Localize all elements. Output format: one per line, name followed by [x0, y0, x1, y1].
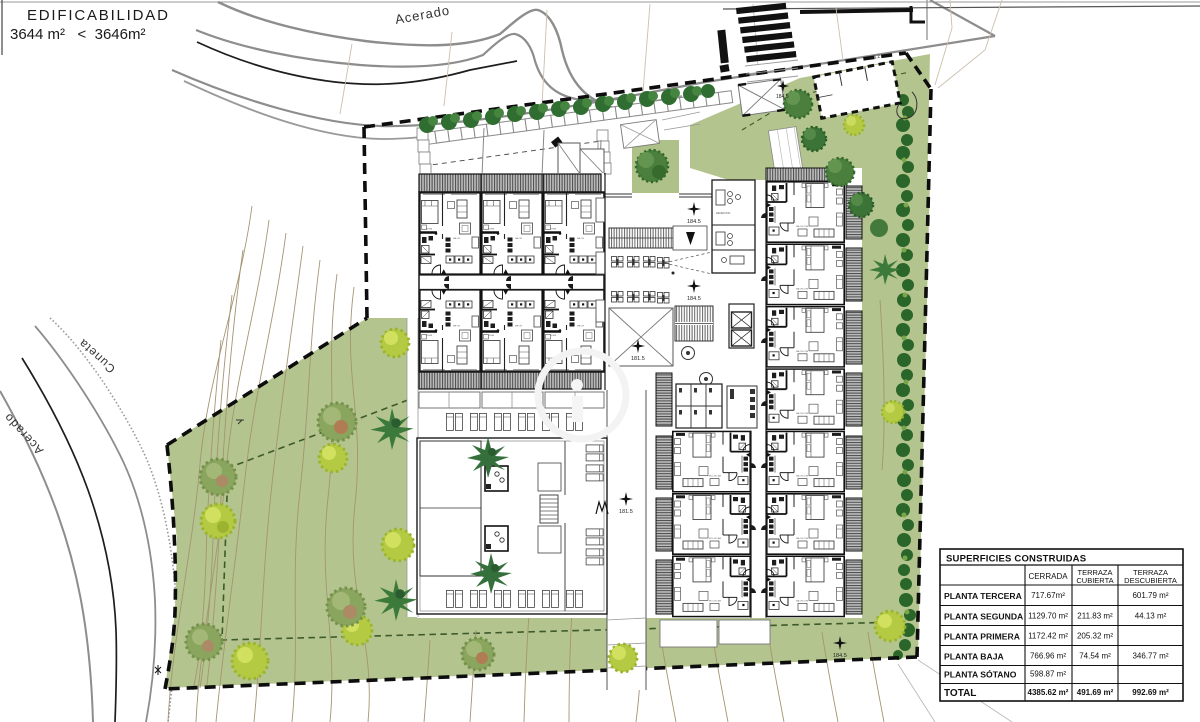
svg-text:PLANTA TERCERA: PLANTA TERCERA [944, 591, 1022, 601]
svg-text:491.69 m²: 491.69 m² [1077, 688, 1114, 697]
svg-text:RECEPCION: RECEPCION [716, 212, 730, 215]
svg-text:766.96 m²: 766.96 m² [1030, 652, 1066, 661]
svg-text:CERRADA: CERRADA [1028, 572, 1068, 581]
svg-text:598.87 m²: 598.87 m² [1030, 670, 1066, 679]
svg-text:PLANTA PRIMERA: PLANTA PRIMERA [944, 632, 1020, 642]
svg-text:184.5: 184.5 [687, 219, 701, 225]
svg-text:184.5: 184.5 [687, 296, 701, 302]
svg-text:181.5: 181.5 [619, 509, 633, 515]
svg-text:601.79 m²: 601.79 m² [1132, 591, 1168, 600]
svg-text:TOTAL: TOTAL [944, 688, 976, 699]
svg-text:211.83 m²: 211.83 m² [1077, 612, 1113, 621]
svg-text:74.54 m²: 74.54 m² [1079, 652, 1111, 661]
svg-text:3644 m² < 3646m²: 3644 m² < 3646m² [10, 26, 145, 43]
svg-text:PLANTA SÓTANO: PLANTA SÓTANO [944, 669, 1017, 680]
svg-text:205.32 m²: 205.32 m² [1077, 632, 1113, 641]
svg-text:PLANTA SEGUNDA: PLANTA SEGUNDA [944, 612, 1023, 622]
svg-text:181.5: 181.5 [631, 356, 645, 362]
svg-text:717.67m²: 717.67m² [1031, 591, 1065, 600]
svg-text:44.13 m²: 44.13 m² [1135, 612, 1167, 621]
svg-text:SUPERFICIES CONSTRUIDAS: SUPERFICIES CONSTRUIDAS [946, 554, 1086, 565]
svg-text:EDIFICABILIDAD: EDIFICABILIDAD [27, 7, 170, 24]
svg-text:184.5: 184.5 [776, 94, 789, 100]
svg-text:1129.70 m²: 1129.70 m² [1028, 612, 1068, 621]
svg-text:992.69 m²: 992.69 m² [1132, 688, 1169, 697]
svg-text:DESCUBIERTA: DESCUBIERTA [1124, 576, 1177, 585]
svg-text:CUBIERTA: CUBIERTA [1076, 576, 1113, 585]
svg-text:1172.42 m²: 1172.42 m² [1028, 632, 1068, 641]
svg-text:184.5: 184.5 [833, 653, 847, 659]
svg-text:346.77 m²: 346.77 m² [1132, 652, 1168, 661]
svg-text:4385.62 m²: 4385.62 m² [1028, 688, 1069, 697]
svg-text:PLANTA BAJA: PLANTA BAJA [944, 652, 1004, 662]
